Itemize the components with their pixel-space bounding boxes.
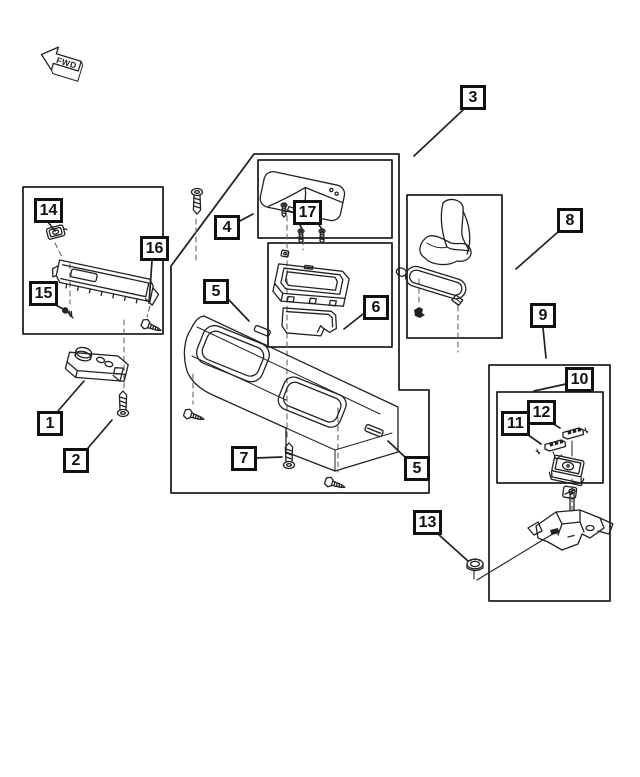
shift-boot-drawing xyxy=(420,200,471,265)
callout-15[interactable]: 15 xyxy=(29,281,58,306)
callout-5-rear[interactable]: 5 xyxy=(404,456,430,481)
screw-item17b-drawing xyxy=(298,229,304,243)
callout-6[interactable]: 6 xyxy=(363,295,389,320)
boot-bezel-ring-drawing xyxy=(392,261,468,306)
indicator-plate-item12-drawing xyxy=(563,428,584,439)
console-trim-panel-drawing xyxy=(184,316,398,471)
bin-liner-mat-item6-drawing xyxy=(279,303,339,341)
callout-17[interactable]: 17 xyxy=(293,200,322,225)
clip-item8-drawing xyxy=(414,307,425,318)
callout-3[interactable]: 3 xyxy=(460,85,486,110)
bracket-panel-drawing xyxy=(49,259,161,307)
parts-diagram-canvas: FWD xyxy=(0,0,640,777)
small-clip-under-lid-drawing xyxy=(281,250,289,257)
callout-14[interactable]: 14 xyxy=(34,198,63,223)
tiny-clip-near-item11 xyxy=(536,449,540,454)
retainer-clip-item14-drawing xyxy=(46,224,68,240)
screw-item4-drawing xyxy=(192,189,203,215)
callout-16[interactable]: 16 xyxy=(140,236,169,261)
sub-box-items-4-17-lid xyxy=(258,160,392,238)
callout-1[interactable]: 1 xyxy=(37,411,63,436)
trim-strip-item5-drawing xyxy=(364,424,383,437)
screw-item7-drawing xyxy=(284,443,295,469)
storage-bin-drawing xyxy=(271,258,350,314)
screw-item2-drawing xyxy=(118,391,129,417)
pushpin-clip-left-drawing xyxy=(183,408,206,424)
callout-5-front[interactable]: 5 xyxy=(203,279,229,304)
fwd-label: FWD xyxy=(55,55,78,71)
callout-13[interactable]: 13 xyxy=(413,510,442,535)
tiny-clip-near-item12 xyxy=(584,428,588,433)
callout-10[interactable]: 10 xyxy=(565,367,594,392)
callout-4[interactable]: 4 xyxy=(214,215,240,240)
nut-item13-drawing xyxy=(467,559,483,571)
callout-2[interactable]: 2 xyxy=(63,448,89,473)
shifter-switch-module-item1-drawing xyxy=(64,344,130,389)
callout-9[interactable]: 9 xyxy=(530,303,556,328)
screw-item15-drawing xyxy=(61,306,76,318)
callout-12[interactable]: 12 xyxy=(527,400,556,425)
callout-8[interactable]: 8 xyxy=(557,208,583,233)
diagram-line-art: FWD xyxy=(0,0,640,777)
callout-11[interactable]: 11 xyxy=(501,411,530,436)
pushpin-clip-item16-drawing xyxy=(140,318,163,335)
pushpin-clip-bottom-drawing xyxy=(324,476,347,492)
screw-item17c-drawing xyxy=(319,229,325,243)
switch-block-item10-drawing xyxy=(548,455,587,486)
fwd-direction-arrow: FWD xyxy=(37,43,86,81)
callout-7[interactable]: 7 xyxy=(231,446,257,471)
item13-nut-to-shifter-line xyxy=(474,532,556,580)
indicator-plate-item11-drawing xyxy=(545,440,566,451)
